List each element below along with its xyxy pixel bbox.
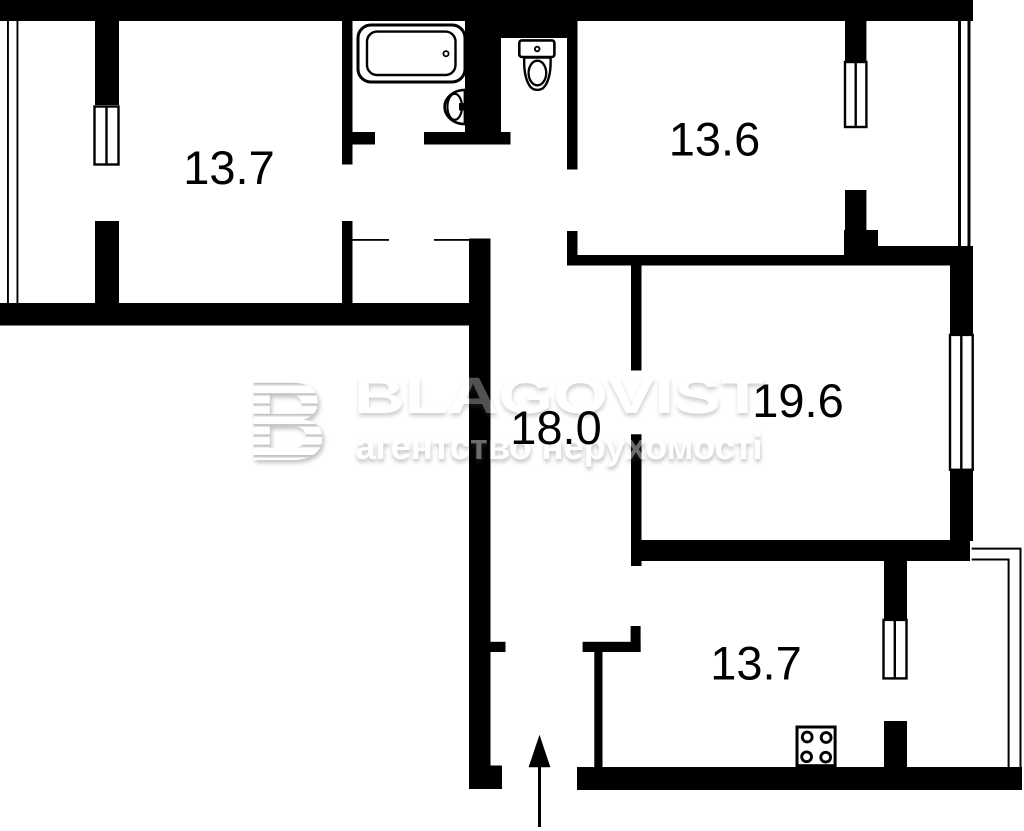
- svg-text:13.7: 13.7: [183, 141, 274, 194]
- svg-text:18.0: 18.0: [510, 401, 601, 454]
- svg-text:19.6: 19.6: [752, 374, 843, 427]
- svg-text:13.7: 13.7: [710, 637, 801, 690]
- svg-text:13.6: 13.6: [669, 113, 760, 166]
